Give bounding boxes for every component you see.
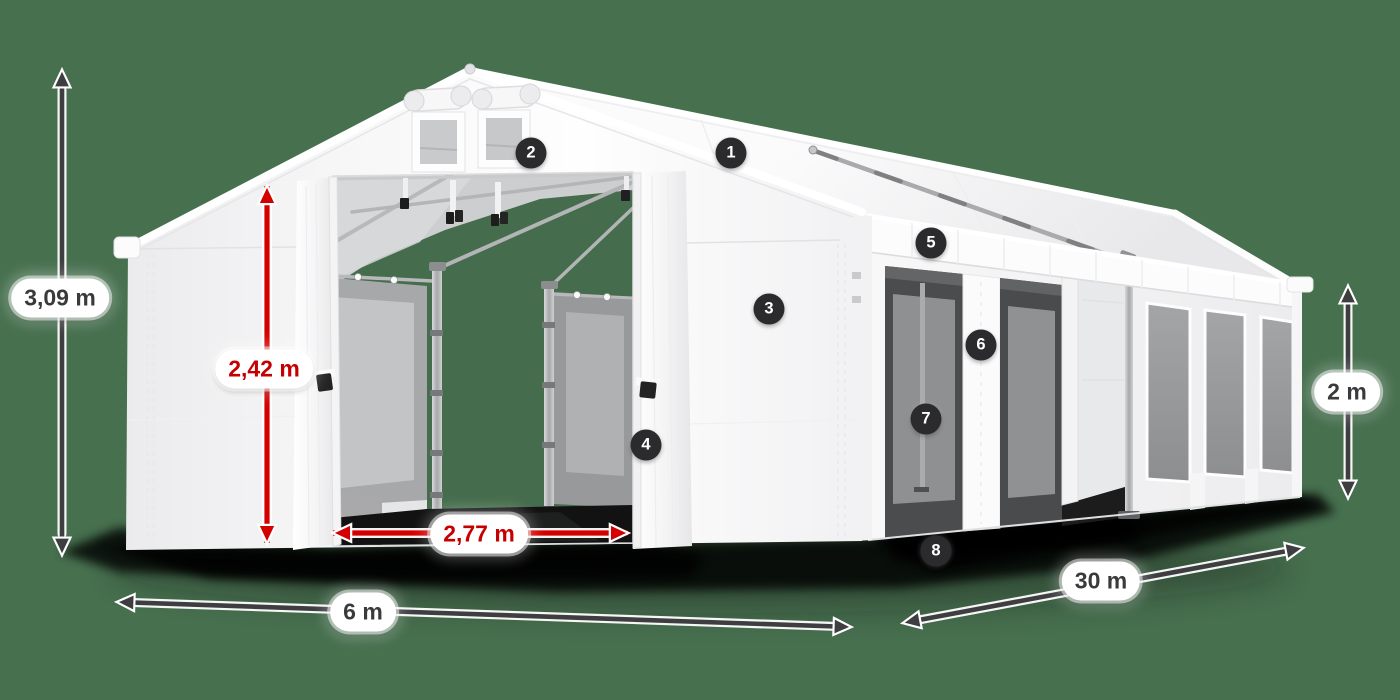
callout-badge-2[interactable]: 2 — [516, 138, 547, 169]
callout-badge-3[interactable]: 3 — [754, 294, 785, 325]
side-door-panel — [1062, 256, 1128, 526]
dimension-label-length: 30 m — [1062, 562, 1140, 601]
tent-illustration — [0, 0, 1400, 700]
front-door-right — [633, 171, 692, 549]
dimension-label-side-height: 2 m — [1314, 373, 1380, 412]
side-door-opening-b — [1000, 278, 1062, 528]
callout-badge-5[interactable]: 5 — [916, 228, 947, 259]
side-door-opening-a — [885, 266, 963, 538]
inner-pole — [920, 283, 925, 489]
callout-badge-6[interactable]: 6 — [966, 330, 997, 361]
rear-corner-post — [1292, 286, 1302, 498]
peak-cap — [465, 64, 475, 74]
vent-roll — [404, 86, 471, 112]
door-handle — [316, 373, 333, 392]
dimension-label-door-width: 2,77 m — [430, 515, 528, 554]
callout-badge-1[interactable]: 1 — [716, 138, 747, 169]
front-corner-post — [855, 214, 872, 541]
callout-badge-7[interactable]: 7 — [911, 404, 942, 435]
callout-badge-8[interactable]: 8 — [921, 536, 952, 567]
dimension-label-door-height: 2,42 m — [215, 350, 313, 389]
door-opening-interior — [330, 160, 636, 552]
product-dimension-diagram: 3,09 m 2,42 m 2,77 m 6 m 30 m 2 m 1 2 3 … — [0, 0, 1400, 700]
dimension-label-total-height: 3,09 m — [11, 279, 109, 318]
eave-cap — [114, 237, 140, 258]
callout-badge-4[interactable]: 4 — [631, 430, 662, 461]
dimension-label-gable-width: 6 m — [330, 593, 396, 632]
door-handle — [639, 381, 657, 399]
